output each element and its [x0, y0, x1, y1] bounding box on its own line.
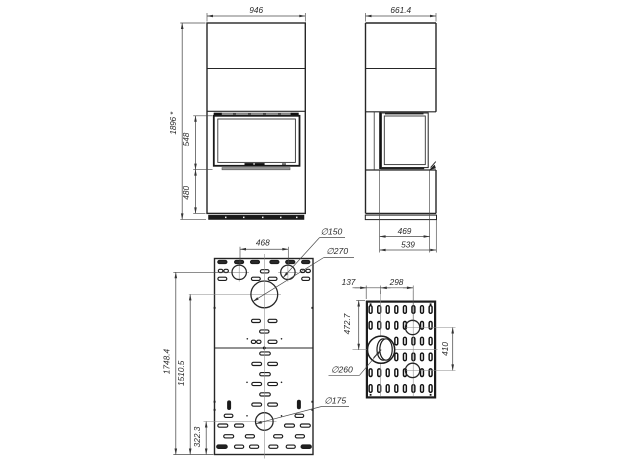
- svg-text:∅150: ∅150: [321, 226, 343, 236]
- svg-text:468: 468: [256, 238, 270, 248]
- svg-text:∅260: ∅260: [331, 364, 353, 374]
- svg-text:∅175: ∅175: [324, 395, 346, 405]
- svg-text:1510.5: 1510.5: [176, 360, 186, 386]
- svg-text:410: 410: [440, 342, 450, 356]
- svg-text:472.7: 472.7: [342, 313, 352, 334]
- svg-text:469: 469: [398, 226, 412, 236]
- svg-text:137: 137: [342, 277, 356, 287]
- svg-text:298: 298: [389, 277, 404, 287]
- svg-text:480: 480: [181, 185, 191, 199]
- svg-text:∅270: ∅270: [326, 246, 348, 256]
- svg-text:548: 548: [181, 132, 191, 146]
- svg-text:1896 *: 1896 *: [168, 111, 178, 135]
- svg-text:661.4: 661.4: [390, 5, 411, 15]
- svg-text:539: 539: [401, 239, 415, 249]
- svg-text:322.3: 322.3: [192, 426, 202, 447]
- svg-text:1748.4: 1748.4: [162, 348, 172, 374]
- svg-text:946: 946: [249, 5, 263, 15]
